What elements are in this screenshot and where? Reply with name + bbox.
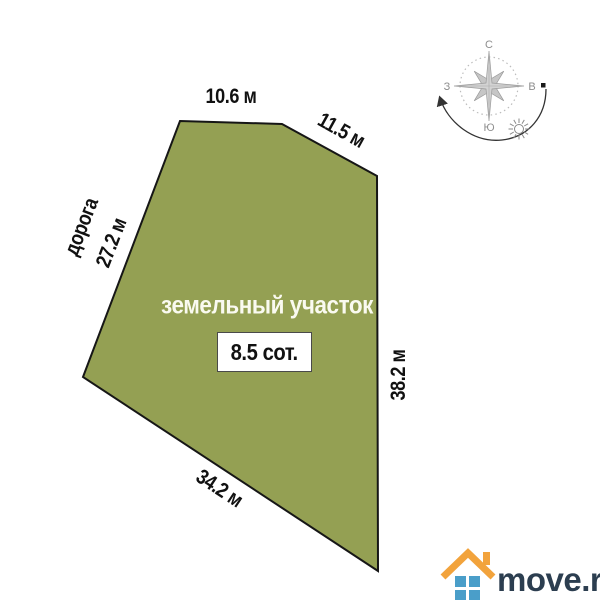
house-body-squares bbox=[455, 576, 480, 600]
dimension-label-top: 10.6 м bbox=[206, 85, 257, 109]
sun-icon bbox=[509, 119, 530, 140]
moveru-logo: move.ru bbox=[437, 544, 600, 600]
area-badge: 8.5 сот. bbox=[217, 332, 312, 372]
compass-west-label: З bbox=[444, 81, 451, 93]
area-value: 8.5 сот. bbox=[231, 339, 298, 366]
land-plot-diagram: 10.6 м 11.5 м дорога 27.2 м 38.2 м 34.2 … bbox=[0, 0, 600, 600]
house-chimney bbox=[483, 552, 490, 565]
compass-south-label: Ю bbox=[483, 122, 494, 134]
compass-rose: С В З Ю bbox=[425, 15, 575, 155]
compass-north-label: С bbox=[485, 39, 493, 51]
dimension-label-right: 38.2 м bbox=[387, 350, 411, 401]
house-icon bbox=[440, 546, 496, 600]
compass-east-label: В bbox=[528, 81, 535, 93]
moveru-logo-text: move.ru bbox=[497, 563, 600, 596]
arc-start-marker-dot bbox=[541, 83, 546, 88]
plot-title: земельный участок bbox=[161, 292, 373, 321]
